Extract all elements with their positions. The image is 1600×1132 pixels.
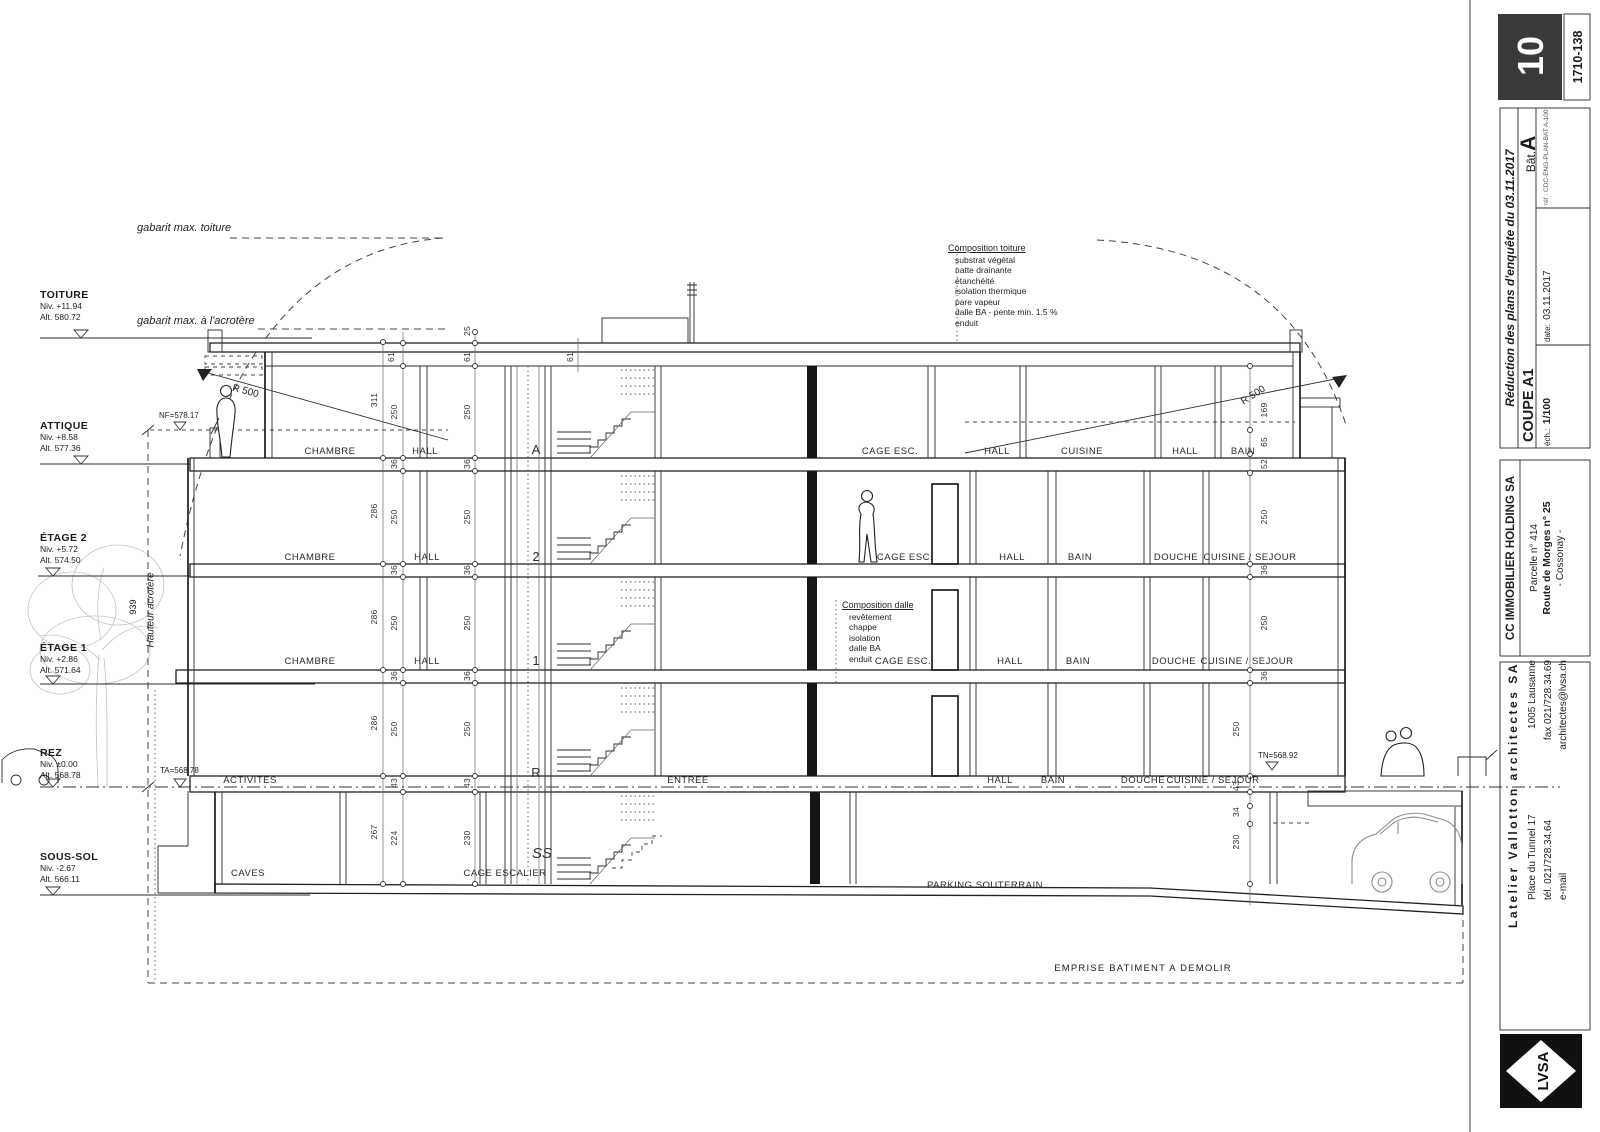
file-ref: réf : CDC-ENG-PLAN-BAT A-100: [1541, 113, 1552, 205]
level-name: REZ: [40, 748, 160, 759]
dim-text: 36: [1259, 565, 1269, 575]
level-etage2: ÉTAGE 2 Niv. +5.72 Alt. 574.50: [40, 533, 160, 566]
architect-email: architectes@lvsa.ch: [1557, 660, 1570, 750]
scale-label: éch.:: [1543, 429, 1552, 446]
dim-text: 65: [1259, 437, 1269, 447]
room-label: CUISINE / SEJOUR: [1167, 775, 1260, 786]
dim-text: 250: [389, 404, 399, 419]
dim-text: 36: [462, 671, 472, 681]
dim-text: 267: [369, 824, 379, 839]
dim-text: 36: [462, 565, 472, 575]
roof-details: [150, 282, 1340, 458]
composition-item: étanchéité: [948, 276, 1058, 287]
room-label: HALL: [414, 656, 440, 667]
dim-text: 34: [1231, 807, 1241, 817]
spot-nf: NF=578.17: [159, 411, 199, 420]
composition-dalle: Composition dalle revêtement chappe isol…: [842, 600, 914, 664]
dim-text: 250: [389, 615, 399, 630]
ta-marker: [174, 779, 186, 787]
room-label: HALL: [987, 775, 1013, 786]
architect-email-label: e-mail: [1557, 873, 1570, 900]
room-label: CAGE ESC.: [862, 446, 918, 457]
room-label: HALL: [999, 552, 1025, 563]
level-alt: Alt. 571.64: [40, 665, 160, 676]
stairs: [557, 370, 662, 884]
dim-text: 52: [1259, 459, 1269, 469]
composition-title: Composition dalle: [842, 600, 914, 611]
level-attique: ATTIQUE Niv. +8.58 Alt. 577.36: [40, 421, 160, 454]
date-label: date:: [1543, 324, 1552, 342]
scale-field: éch.: 1/100: [1539, 346, 1553, 446]
level-name: ATTIQUE: [40, 421, 160, 432]
level-niv: Niv. ±0.00: [40, 759, 160, 770]
client-city: - Cossonay -: [1554, 462, 1567, 654]
dim-text: 286: [369, 715, 379, 730]
architect-email-row: e-mail architectes@lvsa.ch: [1557, 660, 1570, 900]
hauteur-value: 939: [128, 599, 138, 614]
room-label: CAGE ESCALIER: [463, 868, 546, 879]
level-name: ÉTAGE 2: [40, 533, 160, 544]
dim-text: 250: [1259, 615, 1269, 630]
client-street: Route de Morges n° 25: [1541, 462, 1554, 654]
room-label: HALL: [984, 446, 1010, 457]
level-niv: Niv. +5.72: [40, 544, 160, 555]
composition-toiture: Composition toiture substrat végétal nat…: [948, 243, 1058, 328]
date-field: date: 03.11.2017: [1539, 212, 1553, 342]
dim-text: 36: [1259, 671, 1269, 681]
room-label: CHAMBRE: [304, 446, 355, 457]
room-label: BAIN: [1041, 775, 1065, 786]
composition-item: isolation thermique: [948, 286, 1058, 297]
room-label: PARKING SOUTERRAIN: [927, 880, 1043, 891]
room-label: BAIN: [1068, 552, 1092, 563]
spot-tn: TN=568.92: [1258, 751, 1298, 760]
drawing-sheet: .w{stroke:#2b2b2b;stroke-width:.9;fill:n…: [0, 0, 1600, 1132]
gabarit-lines: [180, 238, 1347, 556]
dim-text: 25: [462, 326, 472, 336]
dim-text: 43: [462, 778, 472, 788]
nf-marker: [174, 422, 186, 430]
people-rez: [1381, 728, 1497, 777]
dim-text: 250: [462, 615, 472, 630]
emprise-label: EMPRISE BATIMENT A DEMOLIR: [1050, 963, 1236, 974]
scale-value: 1/100: [1541, 398, 1553, 424]
room-label: HALL: [414, 552, 440, 563]
client-name: CC IMMOBILIER HOLDING SA: [1503, 462, 1520, 654]
room-label: DOUCHE: [1152, 656, 1196, 667]
level-rez: REZ Niv. ±0.00 Alt. 568.78: [40, 748, 160, 781]
dim-text: 43: [1231, 781, 1241, 791]
composition-item: dalle BA: [842, 643, 914, 654]
architect-address2: 1005 Lausanne: [1526, 660, 1540, 729]
shaft-letter-attique: A: [532, 442, 541, 457]
building-id: Bât.A: [1516, 112, 1542, 196]
room-label: BAIN: [1231, 446, 1255, 457]
level-alt: Alt. 574.50: [40, 555, 160, 566]
dim-text: 286: [369, 503, 379, 518]
level-niv: Niv. +2.86: [40, 654, 160, 665]
car-parking: [1352, 813, 1462, 892]
room-label: CHAMBRE: [284, 552, 335, 563]
composition-item: natte drainante: [948, 265, 1058, 276]
date-value: 03.11.2017: [1542, 270, 1553, 319]
dim-text: 250: [462, 404, 472, 419]
level-name: TOITURE: [40, 290, 160, 301]
shaft-letter-etage2: 2: [532, 549, 539, 564]
dim-text: 250: [389, 509, 399, 524]
building-value: A: [1517, 136, 1540, 151]
architect-fax: fax 021/728.34.69: [1542, 660, 1556, 740]
gabarit-acrotere-label: gabarit max. à l'acrotère: [137, 315, 255, 327]
drawing-title: COUPE A1: [1520, 296, 1538, 446]
composition-item: pare vapeur: [948, 297, 1058, 308]
level-alt: Alt. 568.78: [40, 770, 160, 781]
dim-text: 36: [389, 459, 399, 469]
shaft-letter-etage1: 1: [532, 653, 539, 668]
dim-text: 250: [389, 721, 399, 736]
room-label: DOUCHE: [1154, 552, 1198, 563]
room-label: BAIN: [1066, 656, 1090, 667]
section-linework: .w{stroke:#2b2b2b;stroke-width:.9;fill:n…: [0, 0, 1600, 1132]
architect-address1: Place du Tunnel 17: [1526, 814, 1540, 900]
architect-tel: tél. 021/728.34.64: [1542, 820, 1556, 900]
room-label: CAGE ESC.: [877, 552, 933, 563]
room-label: CUISINE / SEJOUR: [1201, 656, 1294, 667]
level-alt: Alt. 577.36: [40, 443, 160, 454]
composition-title: Composition toiture: [948, 243, 1058, 254]
dim-text: 250: [1231, 721, 1241, 736]
architect-address-row: Place du Tunnel 17 1005 Lausanne: [1526, 660, 1540, 900]
composition-item: revêtement: [842, 612, 914, 623]
architect-phone-row: tél. 021/728.34.64 fax 021/728.34.69: [1542, 660, 1556, 900]
hauteur-acrotere-line: [142, 425, 155, 983]
dim-text: 250: [462, 509, 472, 524]
level-name: ÉTAGE 1: [40, 643, 160, 654]
room-label: CAVES: [231, 868, 265, 879]
plan-number: 1710-138: [1567, 14, 1589, 100]
dim-text: 250: [1259, 509, 1269, 524]
tn-marker: [1266, 762, 1278, 770]
person-etage2: [859, 491, 877, 563]
composition-item: enduit: [948, 318, 1058, 329]
room-label: ACTIVITES: [223, 775, 277, 786]
level-soussol: SOUS-SOL Niv. -2.67 Alt. 566.11: [40, 852, 160, 885]
architect-name: Latelier Vallotton architectes SA: [1505, 664, 1522, 928]
level-niv: Niv. +8.58: [40, 432, 160, 443]
emprise-line: [148, 920, 1463, 983]
dim-text: 250: [462, 721, 472, 736]
room-label: CAGE ESC.: [875, 656, 931, 667]
composition-item: dalle BA - pente min. 1.5 %: [948, 307, 1058, 318]
dim-text: 311: [369, 393, 379, 407]
gabarit-toiture-label: gabarit max. toiture: [137, 222, 231, 234]
room-label: HALL: [412, 446, 438, 457]
radius-arrows: [197, 369, 1347, 453]
dim-text: 61: [565, 352, 575, 362]
room-label: CHAMBRE: [284, 656, 335, 667]
dim-text: 36: [389, 565, 399, 575]
elevator-shaft: [505, 366, 551, 884]
dim-text: 224: [389, 830, 399, 845]
building-label: Bât.: [1524, 151, 1538, 172]
dim-text: 286: [369, 609, 379, 624]
shaft-letter-soussol: SS: [532, 845, 552, 862]
dim-text: 43: [389, 778, 399, 788]
room-label: CUISINE / SEJOUR: [1204, 552, 1297, 563]
dim-text: 169: [1259, 402, 1269, 417]
dim-text: 230: [462, 830, 472, 845]
level-niv: Niv. +11.94: [40, 301, 160, 312]
room-label: DOUCHE: [1121, 775, 1165, 786]
architect-logo: LVSA: [1532, 1046, 1556, 1096]
composition-item: substrat végétal: [948, 255, 1058, 266]
person-attique: [211, 386, 235, 458]
hauteur-label: Hauteur acrotère: [146, 572, 157, 647]
dim-text: 36: [462, 459, 472, 469]
room-label: HALL: [997, 656, 1023, 667]
composition-item: chappe: [842, 622, 914, 633]
client-parcel: Parcelle n° 414: [1528, 462, 1541, 654]
room-label: HALL: [1172, 446, 1198, 457]
dim-text: 36: [389, 671, 399, 681]
level-alt: Alt. 566.11: [40, 874, 160, 885]
dim-text: 61: [462, 352, 472, 362]
level-niv: Niv. -2.67: [40, 863, 160, 874]
composition-item: isolation: [842, 633, 914, 644]
dim-text: 230: [1231, 834, 1241, 849]
shaft-letter-rez: R: [531, 765, 540, 780]
level-etage1: ÉTAGE 1 Niv. +2.86 Alt. 571.64: [40, 643, 160, 676]
level-name: SOUS-SOL: [40, 852, 160, 863]
room-label: ENTREE: [667, 775, 709, 786]
spot-ta: TA=568.78: [160, 766, 199, 775]
sheet-number: 10: [1504, 16, 1558, 96]
dim-text: 61: [386, 352, 396, 362]
room-label: CUISINE: [1061, 446, 1103, 457]
